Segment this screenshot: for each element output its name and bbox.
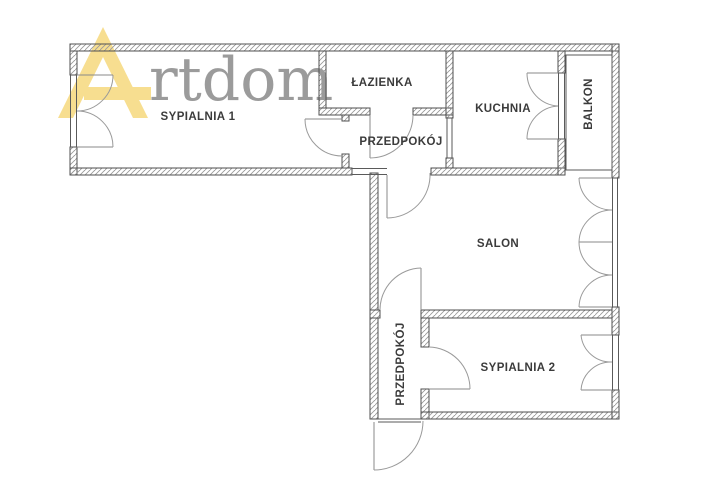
- door-sypialnia-1: [305, 119, 342, 156]
- room-label-przedpokoj-dolny: PRZEDPOKÓJ: [394, 322, 407, 405]
- room-label-salon: SALON: [477, 238, 519, 250]
- artdom-logo-text: rtdom: [149, 45, 333, 115]
- door-entrance: [374, 419, 423, 470]
- door-balkon: [527, 73, 565, 139]
- window-salon: [579, 178, 618, 307]
- floor-plan-canvas: rtdom: [0, 0, 710, 500]
- opening-kuchnia: [447, 118, 452, 158]
- window-sypialnia-2: [581, 335, 619, 390]
- doors: [305, 73, 565, 470]
- room-label-sypialnia-1: SYPIALNIA 1: [161, 111, 236, 123]
- room-label-lazienka: ŁAZIENKA: [351, 77, 412, 89]
- door-przedpokoj-dolny: [380, 268, 421, 310]
- door-salon: [352, 169, 430, 219]
- room-label-sypialnia-2: SYPIALNIA 2: [481, 362, 556, 374]
- room-label-balkon: BALKON: [583, 78, 595, 130]
- room-label-kuchnia: KUCHNIA: [475, 103, 531, 115]
- door-sypialnia-2: [429, 347, 470, 389]
- floor-plan-page: rtdom: [0, 0, 710, 500]
- room-label-przedpokoj-gorny: PRZEDPOKÓJ: [359, 135, 442, 148]
- artdom-watermark: rtdom: [58, 27, 333, 118]
- window-sypialnia-1: [71, 75, 114, 147]
